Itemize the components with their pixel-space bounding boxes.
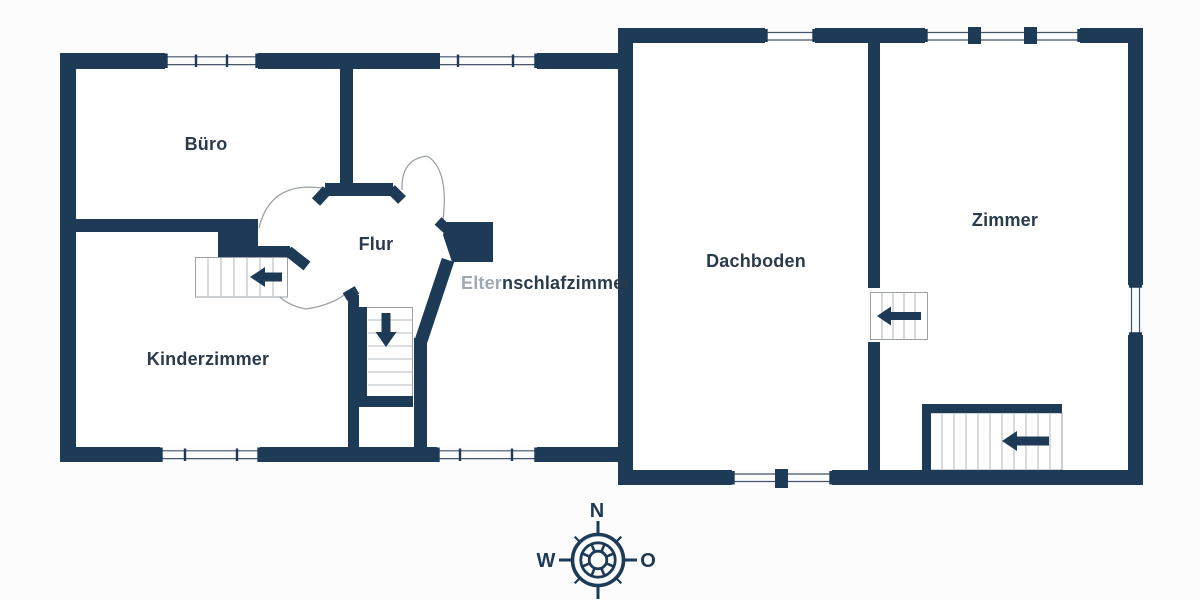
wall-dachboden-zimmer [868, 43, 880, 288]
wall-stair-eltern [414, 338, 427, 447]
wall-left [60, 53, 76, 462]
compass-label-east: O [640, 550, 656, 572]
window [925, 27, 1080, 44]
wall-flur-top-stub [325, 183, 393, 196]
window [765, 29, 815, 42]
door-jamb [391, 189, 402, 200]
wall-block [218, 219, 258, 257]
compass-middle-ring [581, 543, 615, 577]
compass-rose: N W O [537, 500, 656, 599]
wall-right [1128, 335, 1143, 485]
wall-bottom [60, 447, 160, 462]
stair-side-wall [359, 307, 367, 399]
label-dachboden: Dachboden [706, 251, 806, 271]
stair-top-wall [922, 404, 1062, 413]
wall-bottom [832, 470, 1143, 485]
wall-bottom [618, 470, 732, 485]
compass-spokes [582, 544, 613, 575]
label-elternschlafzimmer-muted: Elter [461, 273, 502, 293]
label-kinderzimmer: Kinderzimmer [147, 349, 269, 369]
wall-buero-kinderzimmer [76, 219, 220, 232]
wall-top [618, 28, 765, 43]
door-jamb [345, 290, 357, 297]
compass-hub [589, 551, 607, 569]
stair-side-wall [922, 404, 931, 470]
label-elternschlafzimmer: Elternschlafzimmer [461, 273, 631, 293]
window-post [1024, 27, 1037, 44]
compass-label-west: W [537, 550, 556, 572]
window-post [775, 469, 788, 488]
label-flur: Flur [359, 234, 394, 254]
stair-bottom-wall [357, 396, 413, 407]
wall-dachboden-zimmer [868, 342, 880, 470]
window-post [968, 27, 981, 44]
hall-stairs [196, 258, 288, 298]
wall-buero-flur [340, 69, 353, 184]
wall-left [618, 28, 633, 485]
wall-top [815, 28, 925, 43]
window [165, 54, 258, 69]
window [437, 448, 537, 463]
floor-plan-canvas: Büro Kinderzimmer Flur Elternschlafzimme… [0, 0, 1200, 600]
wall-right [1128, 28, 1143, 285]
window [732, 469, 832, 488]
window [160, 448, 260, 463]
label-elternschlafzimmer-main: nschlafzimmer [502, 273, 631, 293]
zimmer-stairs [922, 404, 1062, 470]
compass-label-north: N [590, 500, 604, 522]
wall-top [258, 53, 440, 69]
window [437, 54, 537, 69]
attic-connector-stairs [871, 293, 928, 340]
wall-chunk [443, 222, 493, 262]
label-buero: Büro [185, 134, 228, 154]
flur-down-stairs [357, 307, 413, 407]
label-zimmer: Zimmer [972, 210, 1038, 230]
floor-plan-svg: Büro Kinderzimmer Flur Elternschlafzimme… [0, 0, 1200, 600]
window [1129, 285, 1142, 335]
wall-bottom [260, 447, 437, 462]
wall-kinderzimmer-stair [348, 295, 359, 447]
compass-cardinal-ticks [559, 521, 637, 599]
